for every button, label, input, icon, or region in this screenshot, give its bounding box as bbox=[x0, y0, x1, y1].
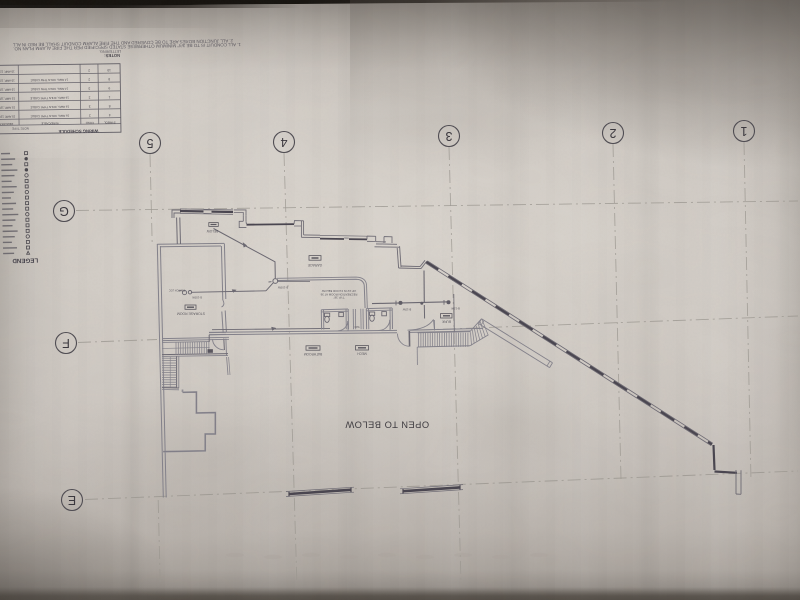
svg-text:SWITCH LOC: SWITCH LOC bbox=[169, 288, 185, 292]
svg-text:8: 8 bbox=[108, 104, 110, 108]
svg-text:3: 3 bbox=[88, 104, 90, 108]
svg-text:15 AMP, 120V: 15 AMP, 120V bbox=[0, 115, 15, 119]
svg-text:15 AMP, 120V: 15 AMP, 120V bbox=[0, 97, 15, 101]
svg-text:WIRE/CABLE: WIRE/CABLE bbox=[41, 121, 58, 125]
svg-text:2: 2 bbox=[88, 77, 90, 81]
svg-text:16 AWG, XHLN TYPE CABLE: 16 AWG, XHLN TYPE CABLE bbox=[30, 114, 69, 119]
svg-text:BATHROOM: BATHROOM bbox=[304, 352, 323, 356]
svg-text:14 AWG, XHLN THW CABLE: 14 AWG, XHLN THW CABLE bbox=[31, 87, 69, 92]
svg-text:15 AMP, 120V: 15 AMP, 120V bbox=[0, 70, 15, 74]
svg-text:B-10SW: B-10SW bbox=[277, 285, 288, 289]
svg-text:W/D: W/D bbox=[354, 325, 359, 329]
svg-text:REMARKS: REMARKS bbox=[0, 122, 13, 126]
svg-text:SYMBOL: SYMBOL bbox=[104, 121, 116, 125]
svg-text:LETTERING.: LETTERING. bbox=[99, 49, 121, 53]
svg-text:1: 1 bbox=[108, 95, 110, 99]
svg-text:10: 10 bbox=[107, 68, 111, 72]
svg-text:B-10SW: B-10SW bbox=[192, 296, 202, 300]
svg-text:3: 3 bbox=[88, 86, 90, 90]
svg-text:MECH: MECH bbox=[357, 352, 367, 356]
svg-text:BELOW: BELOW bbox=[207, 229, 219, 233]
svg-text:4: 4 bbox=[280, 135, 287, 149]
svg-text:F: F bbox=[62, 336, 70, 350]
svg-text:E: E bbox=[68, 493, 76, 507]
svg-text:3: 3 bbox=[445, 129, 452, 143]
svg-text:OPEN TO BELOW: OPEN TO BELOW bbox=[345, 420, 429, 430]
svg-text:15 AMP, 120V: 15 AMP, 120V bbox=[0, 106, 15, 110]
svg-text:B-15W: B-15W bbox=[402, 308, 411, 312]
svg-text:2: 2 bbox=[89, 113, 91, 117]
svg-text:TYP. 36": TYP. 36" bbox=[333, 296, 344, 300]
svg-text:2: 2 bbox=[88, 68, 90, 72]
svg-text:B-15W: B-15W bbox=[451, 307, 460, 311]
svg-text:2: 2 bbox=[88, 95, 90, 99]
svg-text:GARAGE: GARAGE bbox=[307, 263, 322, 267]
svg-text:16 AWG, XHLN TYPE CABLE: 16 AWG, XHLN TYPE CABLE bbox=[30, 96, 69, 101]
svg-text:LEGEND: LEGEND bbox=[12, 256, 38, 264]
svg-text:STORAGE ROOM: STORAGE ROOM bbox=[177, 311, 205, 315]
svg-text:15 AMP, 120V: 15 AMP, 120V bbox=[0, 79, 15, 83]
svg-text:WIRING SCHEDULE: WIRING SCHEDULE bbox=[58, 128, 98, 134]
svg-text:8: 8 bbox=[108, 77, 110, 81]
svg-text:4: 4 bbox=[109, 113, 111, 117]
svg-text:COND: COND bbox=[86, 121, 94, 125]
svg-text:G: G bbox=[59, 204, 69, 218]
svg-text:2: 2 bbox=[609, 126, 616, 140]
svg-text:BUNK: BUNK bbox=[441, 320, 451, 324]
svg-text:1: 1 bbox=[740, 124, 747, 138]
svg-text:16 AWG, XHLN TYPE CABLE: 16 AWG, XHLN TYPE CABLE bbox=[30, 105, 69, 110]
svg-text:NOTE TYPE: NOTE TYPE bbox=[12, 126, 29, 130]
svg-text:14 AWG, XHLN THW CABLE: 14 AWG, XHLN THW CABLE bbox=[30, 78, 68, 83]
svg-text:15 AMP, 120V: 15 AMP, 120V bbox=[0, 88, 15, 92]
svg-text:5: 5 bbox=[146, 136, 153, 150]
svg-text:NOTES:: NOTES: bbox=[104, 53, 120, 58]
svg-text:9: 9 bbox=[108, 86, 110, 90]
